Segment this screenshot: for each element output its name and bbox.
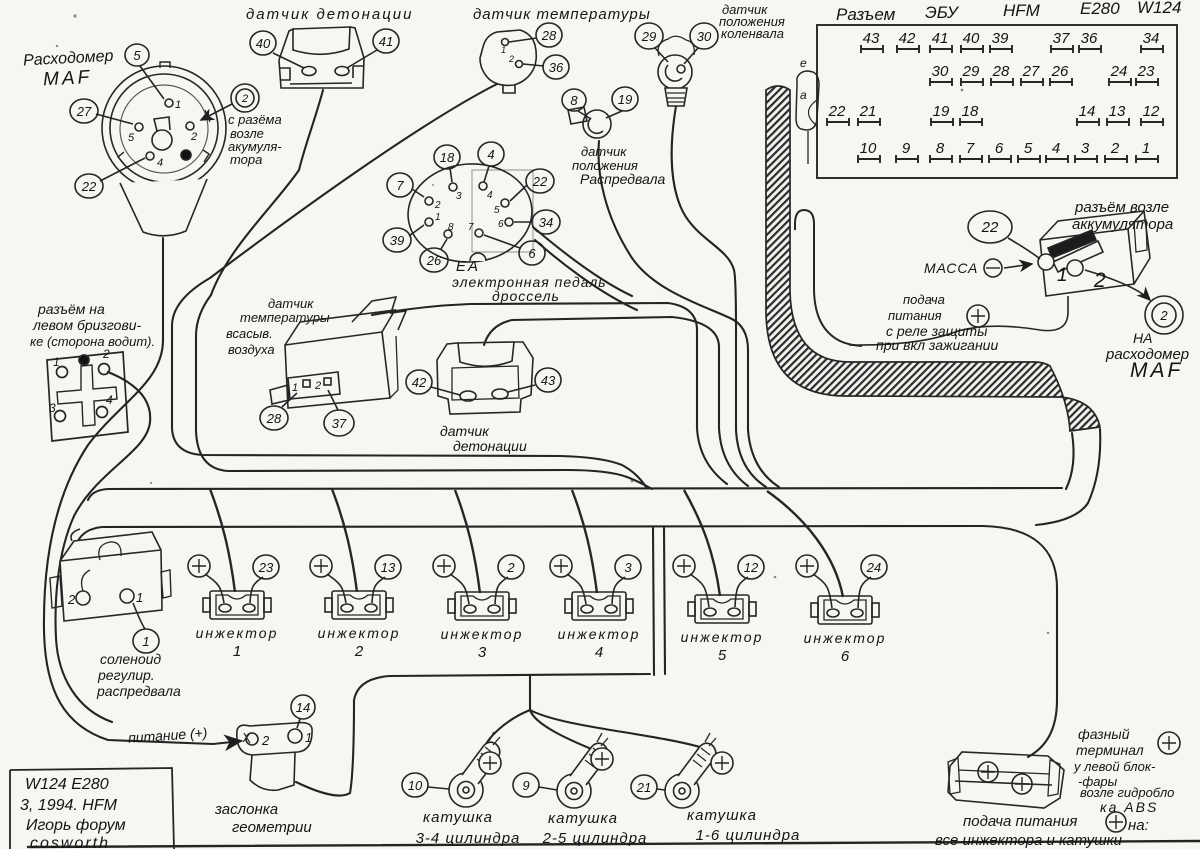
svg-text:регулир.: регулир. (97, 667, 155, 683)
svg-text:W124: W124 (1137, 0, 1181, 17)
svg-text:датчик: датчик (268, 296, 314, 311)
svg-text:терминал: терминал (1076, 742, 1144, 758)
svg-text:1: 1 (136, 590, 143, 605)
svg-text:27: 27 (76, 104, 92, 119)
svg-text:28: 28 (266, 411, 282, 426)
svg-text:23: 23 (258, 560, 274, 575)
svg-text:1: 1 (435, 212, 441, 223)
svg-text:3, 1994. HFM: 3, 1994. HFM (20, 797, 118, 814)
svg-text:4: 4 (595, 644, 603, 661)
svg-text:а: а (800, 88, 807, 102)
svg-text:43: 43 (863, 30, 880, 47)
svg-text:левом бризгови-: левом бризгови- (32, 317, 142, 333)
svg-text:42: 42 (899, 30, 916, 47)
svg-text:7: 7 (468, 222, 474, 233)
svg-text:датчик температуры: датчик температуры (473, 6, 651, 23)
svg-text:при вкл зажигании: при вкл зажигании (876, 337, 998, 353)
svg-text:дроссель: дроссель (492, 288, 560, 304)
svg-text:на:: на: (1128, 817, 1149, 834)
svg-text:2: 2 (354, 643, 364, 660)
svg-text:все инжектора и катушки: все инжектора и катушки (935, 832, 1123, 849)
svg-text:1: 1 (292, 382, 298, 394)
svg-text:5: 5 (128, 132, 135, 144)
svg-text:cosworth: cosworth (30, 835, 110, 849)
svg-text:инжектор: инжектор (318, 625, 401, 641)
svg-text:у левой блок-: у левой блок- (1073, 759, 1156, 774)
svg-text:2: 2 (1093, 269, 1106, 292)
svg-text:1: 1 (142, 634, 149, 649)
svg-text:подача: подача (903, 292, 945, 307)
svg-text:30: 30 (697, 29, 712, 44)
svg-text:28: 28 (992, 63, 1010, 80)
svg-text:5: 5 (494, 205, 500, 216)
svg-text:37: 37 (1053, 30, 1070, 47)
svg-text:питания: питания (888, 308, 942, 323)
svg-text:воздуха: воздуха (228, 342, 275, 357)
svg-text:24: 24 (866, 560, 881, 575)
svg-text:29: 29 (641, 29, 656, 44)
svg-text:22: 22 (532, 174, 548, 189)
svg-text:12: 12 (744, 560, 759, 575)
svg-text:2: 2 (261, 733, 270, 748)
svg-text:40: 40 (963, 30, 980, 47)
svg-text:12: 12 (1143, 103, 1160, 120)
svg-text:7: 7 (966, 140, 975, 157)
svg-text:датчик детонации: датчик детонации (246, 6, 413, 23)
svg-text:НА: НА (1133, 330, 1152, 346)
svg-text:датчик: датчик (440, 423, 490, 439)
svg-text:19: 19 (933, 103, 950, 120)
svg-text:EA: EA (456, 258, 480, 275)
svg-text:22: 22 (828, 103, 846, 120)
svg-text:2: 2 (508, 54, 514, 64)
svg-text:ке (сторона водит).: ке (сторона водит). (30, 334, 155, 349)
svg-text:13: 13 (1109, 103, 1126, 120)
svg-text:ЭБУ: ЭБУ (925, 3, 960, 22)
svg-text:1: 1 (53, 355, 60, 369)
svg-text:W124 E280: W124 E280 (25, 776, 109, 793)
svg-text:22: 22 (981, 219, 999, 236)
svg-text:7: 7 (396, 178, 404, 193)
svg-text:27: 27 (1022, 63, 1040, 80)
svg-text:8: 8 (936, 140, 945, 157)
svg-text:24: 24 (1110, 63, 1128, 80)
svg-text:с разёма: с разёма (228, 112, 282, 127)
svg-text:подача питания: подача питания (963, 813, 1077, 830)
svg-text:14: 14 (296, 700, 310, 715)
svg-text:2: 2 (434, 200, 441, 211)
svg-text:2: 2 (67, 592, 76, 607)
svg-text:9: 9 (902, 140, 911, 157)
svg-text:1: 1 (233, 643, 241, 660)
svg-text:2: 2 (190, 131, 197, 143)
svg-text:E280: E280 (1080, 0, 1120, 18)
svg-text:5: 5 (133, 48, 141, 63)
svg-text:катушка: катушка (548, 810, 618, 827)
svg-text:2: 2 (314, 380, 321, 392)
svg-text:2: 2 (241, 93, 248, 105)
svg-text:13: 13 (381, 560, 396, 575)
svg-text:2: 2 (1159, 308, 1168, 323)
svg-text:2: 2 (102, 347, 110, 361)
svg-text:инжектор: инжектор (558, 626, 641, 642)
svg-text:3-4 цилиндра: 3-4 цилиндра (416, 830, 521, 847)
svg-text:5: 5 (718, 647, 727, 664)
svg-text:28: 28 (541, 28, 557, 43)
svg-text:всасыв.: всасыв. (226, 326, 273, 341)
svg-text:10: 10 (860, 140, 877, 157)
svg-text:43: 43 (541, 373, 556, 388)
svg-text:6: 6 (498, 219, 504, 230)
svg-text:MAF: MAF (1130, 359, 1183, 382)
svg-text:40: 40 (256, 36, 271, 51)
svg-text:34: 34 (539, 215, 553, 230)
svg-text:MAF: MAF (43, 67, 93, 91)
svg-text:Разъем: Разъем (836, 5, 896, 24)
svg-text:42: 42 (412, 375, 427, 390)
svg-text:Распредвала: Распредвала (580, 171, 666, 187)
svg-text:температуры: температуры (240, 310, 330, 325)
svg-text:1: 1 (175, 99, 181, 111)
svg-text:1: 1 (305, 730, 312, 745)
svg-text:соленоид: соленоид (100, 651, 161, 667)
svg-text:37: 37 (332, 416, 347, 431)
svg-text:HFM: HFM (1003, 1, 1041, 20)
svg-text:30: 30 (932, 63, 949, 80)
svg-text:инжектор: инжектор (804, 630, 887, 646)
svg-text:6: 6 (841, 648, 850, 665)
svg-text:1: 1 (1057, 265, 1068, 286)
svg-text:МАССА: МАССА (924, 260, 978, 276)
svg-text:21: 21 (859, 103, 877, 120)
svg-text:5: 5 (1024, 140, 1033, 157)
svg-text:тора: тора (230, 152, 262, 167)
svg-text:1: 1 (1142, 140, 1150, 157)
svg-text:6: 6 (995, 140, 1004, 157)
svg-text:4: 4 (487, 190, 493, 201)
svg-text:36: 36 (549, 60, 564, 75)
svg-text:34: 34 (1143, 30, 1160, 47)
svg-text:разъём на: разъём на (37, 301, 105, 317)
svg-text:4: 4 (1052, 140, 1060, 157)
svg-text:22: 22 (81, 179, 97, 194)
svg-text:19: 19 (618, 92, 632, 107)
svg-text:3: 3 (624, 560, 632, 575)
svg-text:3: 3 (49, 401, 56, 415)
svg-text:инжектор: инжектор (441, 626, 524, 642)
svg-text:4: 4 (157, 157, 163, 169)
svg-text:инжектор: инжектор (681, 629, 764, 645)
svg-text:39: 39 (390, 233, 404, 248)
svg-text:распредвала: распредвала (96, 683, 181, 699)
svg-text:ка ABS: ка ABS (1100, 799, 1158, 815)
svg-text:фазный: фазный (1078, 726, 1130, 742)
svg-text:26: 26 (1051, 63, 1069, 80)
svg-text:4: 4 (106, 393, 113, 407)
svg-text:катушка: катушка (687, 807, 757, 824)
svg-text:катушка: катушка (423, 809, 493, 826)
svg-text:2-5 цилиндра: 2-5 цилиндра (542, 830, 648, 847)
svg-text:26: 26 (426, 253, 442, 268)
svg-text:1: 1 (501, 45, 506, 55)
svg-text:1-6 цилиндра: 1-6 цилиндра (696, 827, 801, 844)
svg-text:8: 8 (448, 222, 454, 233)
svg-text:3: 3 (1081, 140, 1090, 157)
svg-text:геометрии: геометрии (232, 819, 312, 836)
svg-text:14: 14 (1079, 103, 1096, 120)
svg-text:датчик: датчик (581, 144, 627, 159)
svg-text:10: 10 (408, 778, 423, 793)
svg-text:21: 21 (636, 780, 651, 795)
svg-text:4: 4 (487, 147, 494, 162)
svg-text:29: 29 (962, 63, 980, 80)
svg-text:41: 41 (379, 34, 393, 49)
svg-text:2: 2 (1110, 140, 1120, 157)
svg-text:36: 36 (1081, 30, 1098, 47)
svg-text:инжектор: инжектор (196, 625, 279, 641)
svg-text:детонации: детонации (453, 438, 527, 454)
svg-text:коленвала: коленвала (721, 26, 784, 41)
svg-text:2: 2 (506, 560, 515, 575)
svg-text:Игорь форум: Игорь форум (26, 817, 126, 834)
svg-text:заслонка: заслонка (214, 801, 278, 818)
svg-text:3: 3 (478, 644, 487, 661)
svg-text:8: 8 (570, 93, 578, 108)
svg-text:41: 41 (932, 30, 949, 47)
svg-text:39: 39 (992, 30, 1009, 47)
svg-text:18: 18 (962, 103, 979, 120)
svg-text:возле гидробло: возле гидробло (1080, 785, 1174, 800)
svg-text:23: 23 (1137, 63, 1155, 80)
svg-text:9: 9 (522, 778, 529, 793)
svg-text:е: е (800, 56, 807, 70)
svg-text:6: 6 (528, 246, 536, 261)
svg-text:18: 18 (440, 150, 455, 165)
svg-text:3: 3 (456, 191, 462, 202)
